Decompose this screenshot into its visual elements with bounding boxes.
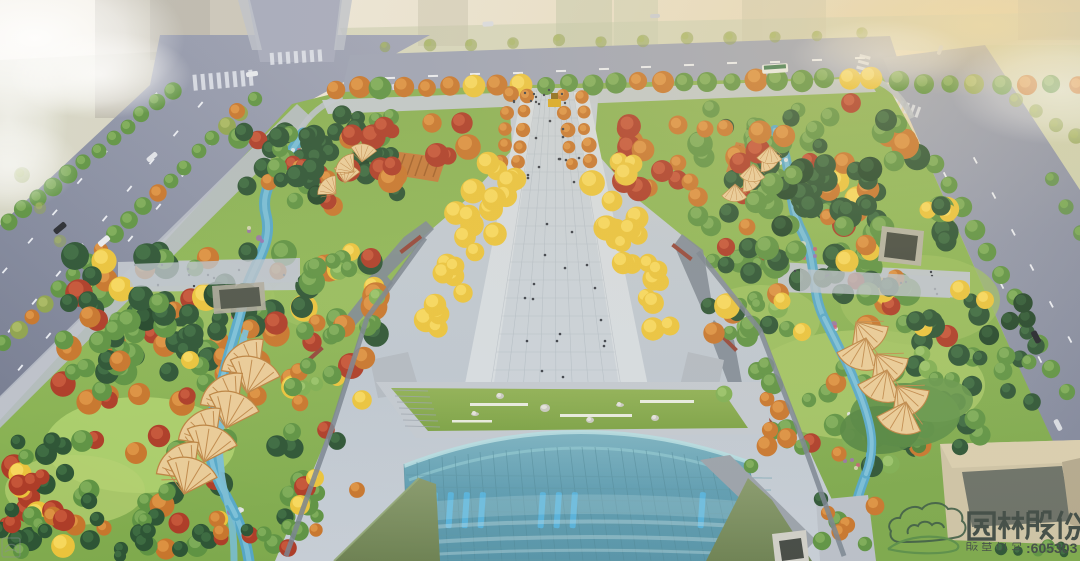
svg-text::605303: :605303 xyxy=(1026,540,1078,556)
